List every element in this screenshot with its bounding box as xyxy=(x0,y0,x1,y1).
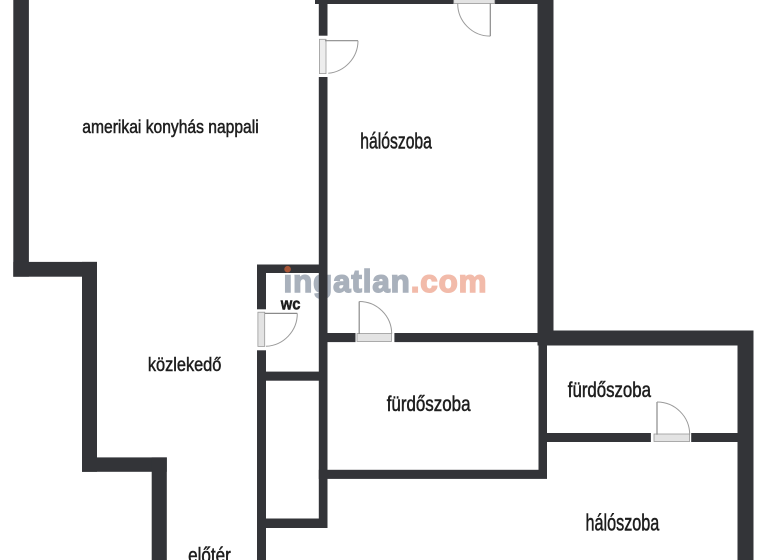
svg-text:előtér: előtér xyxy=(188,544,231,560)
svg-text:hálószoba: hálószoba xyxy=(586,510,660,536)
svg-text:fürdőszoba: fürdőszoba xyxy=(387,393,471,416)
svg-text:amerikai konyhás nappali: amerikai konyhás nappali xyxy=(82,116,258,137)
svg-text:hálószoba: hálószoba xyxy=(360,129,432,154)
svg-text:wc: wc xyxy=(280,295,301,314)
svg-text:közlekedő: közlekedő xyxy=(148,354,222,376)
svg-text:fürdőszoba: fürdőszoba xyxy=(568,379,652,402)
